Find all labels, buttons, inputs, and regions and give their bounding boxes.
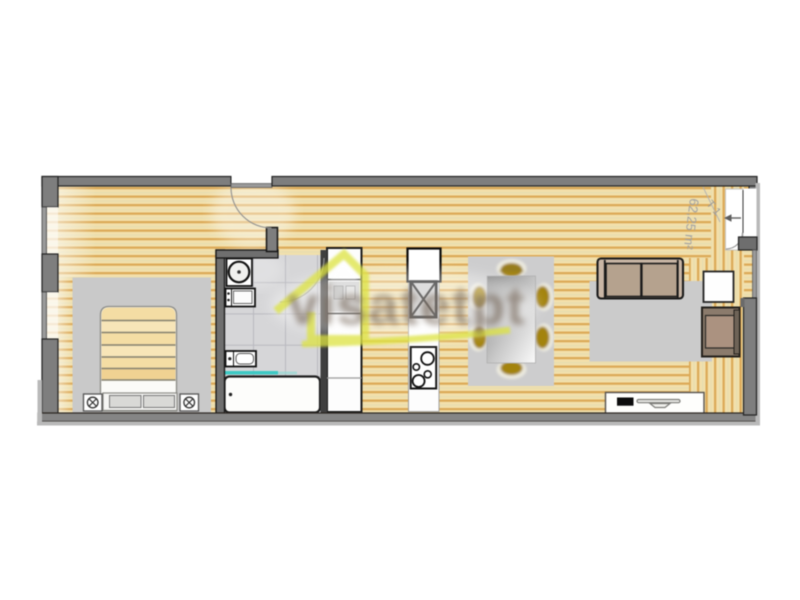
svg-text:visatetpt: visatetpt [288,276,526,336]
